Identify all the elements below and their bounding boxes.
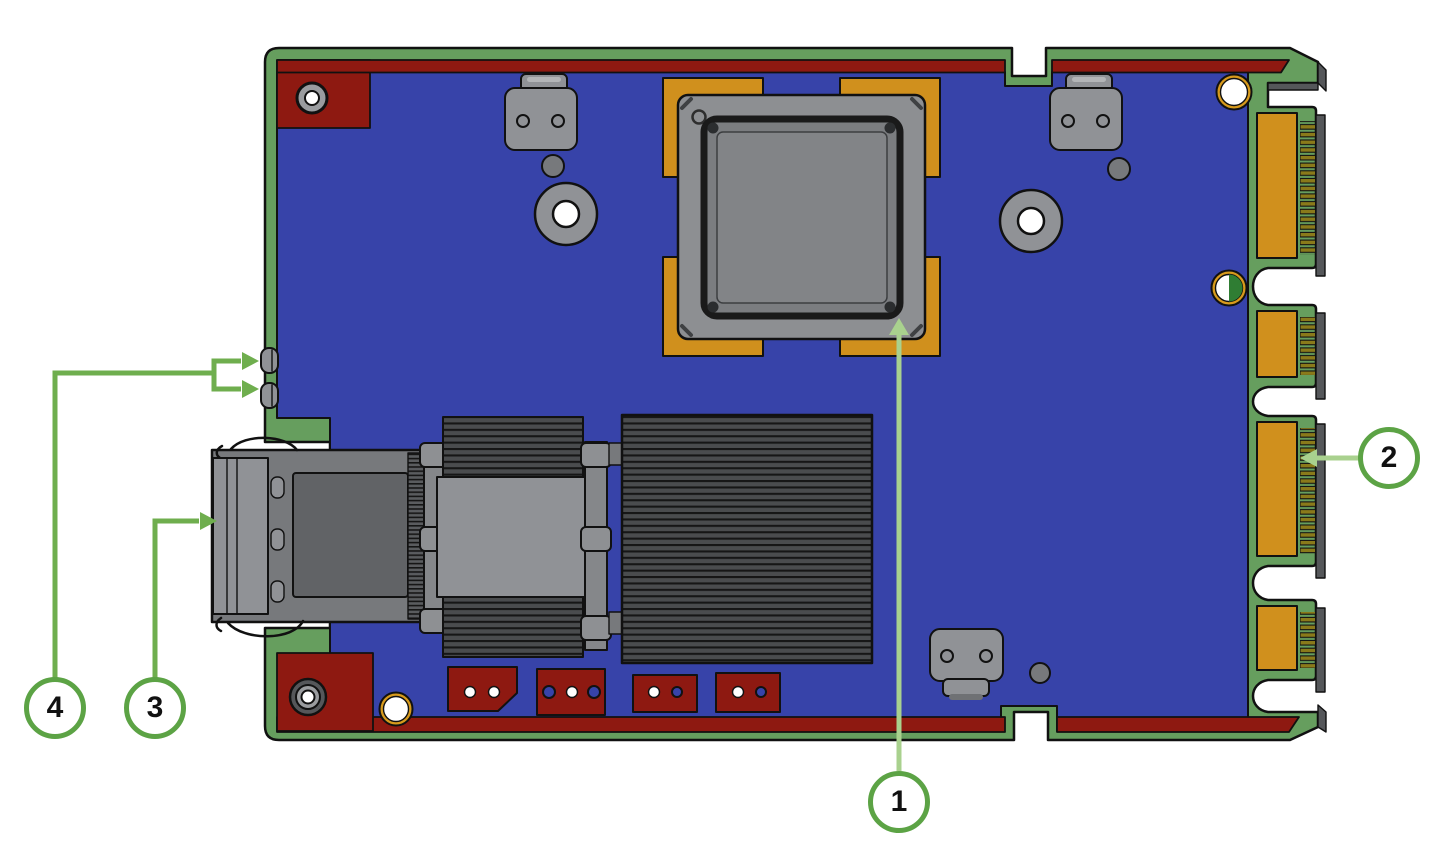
heatsink-left-bottom-fins xyxy=(443,597,583,657)
alignment-dot xyxy=(542,155,564,177)
side-tab-upper xyxy=(261,348,278,373)
callout-1-badge: 1 xyxy=(868,771,930,833)
callout-2-badge: 2 xyxy=(1358,427,1420,489)
chip-lid-face xyxy=(717,132,887,303)
callout-2-number: 2 xyxy=(1381,441,1398,475)
side-tab-lower xyxy=(261,383,278,408)
header-3 xyxy=(633,675,697,712)
edge-connector-contacts xyxy=(1297,121,1315,255)
connector-front-bezel xyxy=(213,458,268,614)
alignment-dot xyxy=(1108,158,1130,180)
callout-4-number: 4 xyxy=(47,691,64,725)
bga-chip xyxy=(663,78,940,356)
heatsink-left-top-fins xyxy=(443,417,583,477)
alignment-dot xyxy=(1030,663,1050,683)
pcb-diagram xyxy=(0,0,1440,846)
header-4 xyxy=(716,673,780,712)
callout-4-badge: 4 xyxy=(24,677,86,739)
edge-connector-pad xyxy=(1257,113,1297,258)
callout-1-number: 1 xyxy=(891,785,908,819)
callout-3-badge: 3 xyxy=(124,677,186,739)
heatsink-right xyxy=(622,415,872,663)
edge-connector-shadow xyxy=(1316,115,1325,276)
front-connector-assembly xyxy=(212,415,872,663)
connector-window xyxy=(293,473,408,597)
callout-3-number: 3 xyxy=(147,691,164,725)
chip-pin1-marker xyxy=(693,111,706,124)
diagram-canvas: 1 2 3 4 xyxy=(0,0,1440,846)
heatsink-left-plate xyxy=(437,477,590,597)
